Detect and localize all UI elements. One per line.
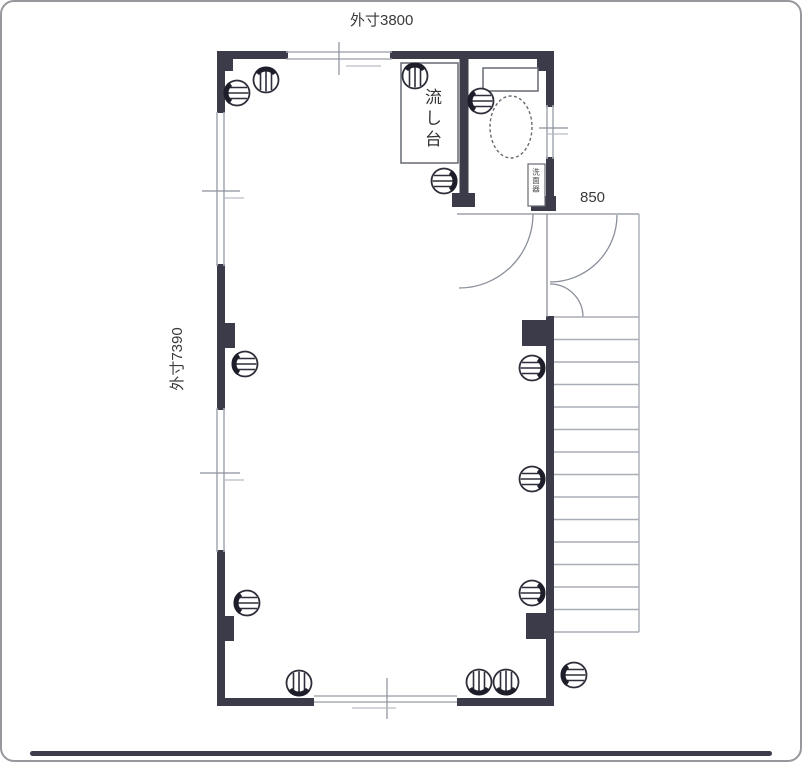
wall-corner-notch (221, 57, 233, 71)
power-outlet-symbol (520, 356, 545, 381)
entry-door-arc-large (550, 215, 617, 282)
power-outlet-symbol (233, 352, 258, 377)
power-outlet-symbol (494, 670, 519, 695)
power-outlet-symbol (520, 467, 545, 492)
wall-corner-notch (537, 55, 551, 71)
power-outlet-symbol (520, 581, 545, 606)
dim-label-left: 外寸7390 (166, 299, 182, 419)
sink-label: 流し台 (423, 88, 440, 151)
power-outlet-symbol (225, 81, 250, 106)
toilet-tank (483, 68, 538, 91)
power-outlet-symbol (287, 671, 312, 696)
floorplan-page: 外寸3800 外寸7390 850 流し台 洗面器 (0, 0, 802, 762)
wall-pilaster (522, 320, 547, 346)
power-outlet-symbol (467, 670, 492, 695)
power-outlet-symbol (235, 591, 260, 616)
floor-plan-svg (2, 2, 802, 762)
power-outlet-symbol (469, 89, 494, 114)
power-outlet-symbol (432, 169, 457, 194)
power-outlet-symbol (562, 663, 587, 688)
bottom-bar (30, 751, 772, 756)
entry-door-arc-small (550, 284, 583, 317)
power-outlet-symbol (254, 68, 279, 93)
wall-pilaster (526, 613, 547, 639)
window-left-lower (217, 408, 224, 552)
partition-foot (452, 193, 475, 207)
dim-label-top: 外寸3800 (350, 9, 413, 30)
window-bottom (314, 696, 457, 702)
dim-label-entry: 850 (580, 189, 605, 206)
power-outlet-symbol (403, 64, 428, 89)
stairs (554, 214, 639, 632)
window-toilet (547, 105, 553, 159)
toilet-bowl (490, 96, 532, 158)
washbasin-label: 洗面器 (532, 168, 540, 194)
wall-pilasters (221, 55, 556, 641)
stair-treads (554, 317, 639, 632)
wall-outline (221, 51, 554, 702)
wall-pilaster (225, 616, 234, 641)
window-left-upper (217, 112, 224, 266)
toilet-door-arc (459, 214, 533, 288)
wall-pilaster (225, 323, 235, 348)
windows (217, 52, 553, 702)
window-center-ticks (200, 42, 568, 719)
doors (457, 214, 639, 317)
